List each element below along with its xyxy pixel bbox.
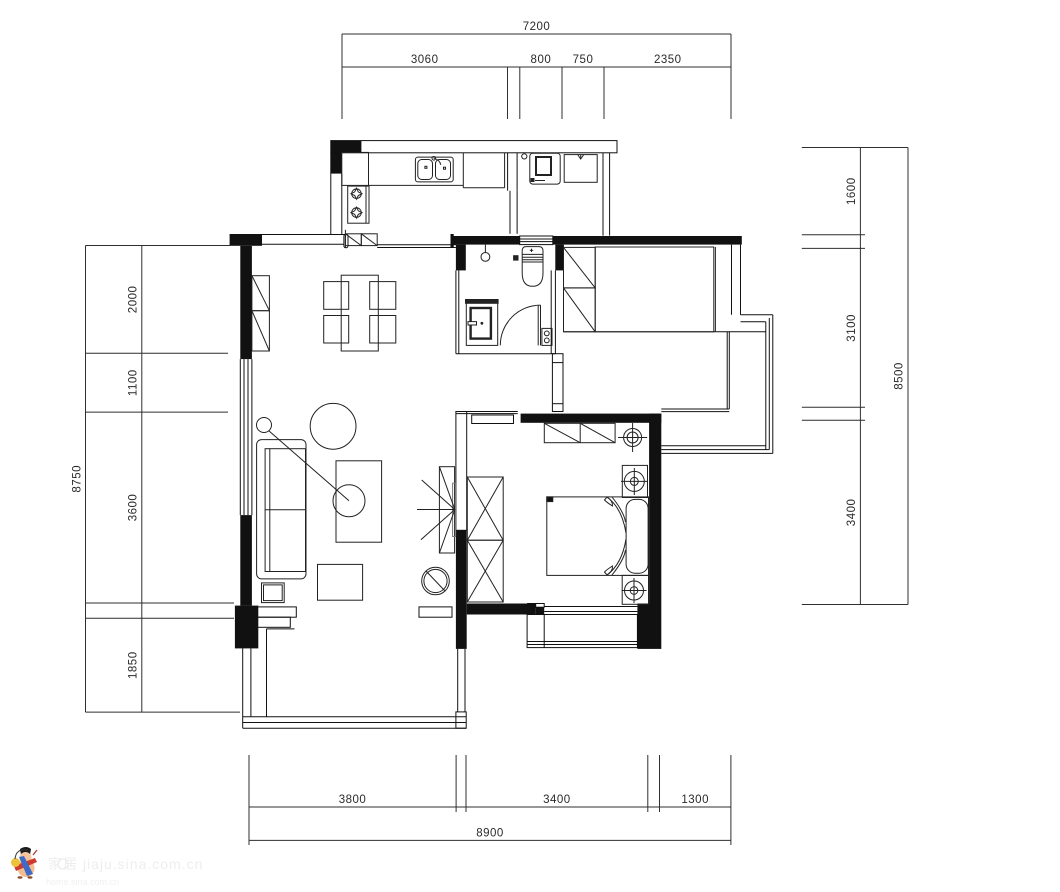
svg-text:3800: 3800: [339, 794, 367, 806]
svg-text:3100: 3100: [846, 314, 858, 342]
svg-text:3060: 3060: [411, 54, 439, 66]
svg-text:8900: 8900: [476, 827, 504, 839]
svg-text:1100: 1100: [128, 369, 140, 396]
svg-text:家居 jiaju.sina.com.cn: 家居 jiaju.sina.com.cn: [48, 856, 203, 872]
svg-text:2000: 2000: [128, 286, 140, 314]
svg-text:3600: 3600: [128, 494, 140, 522]
svg-text:1600: 1600: [846, 177, 858, 205]
svg-text:8500: 8500: [894, 362, 906, 390]
svg-text:3400: 3400: [846, 499, 858, 527]
svg-text:1300: 1300: [681, 794, 709, 806]
svg-text:750: 750: [573, 54, 594, 66]
svg-text:2350: 2350: [654, 54, 682, 66]
svg-text:1850: 1850: [128, 651, 140, 679]
svg-text:3400: 3400: [543, 794, 571, 806]
svg-text:7200: 7200: [523, 21, 551, 33]
svg-text:8750: 8750: [72, 465, 84, 493]
svg-text:home.sina.com.cn: home.sina.com.cn: [46, 877, 119, 887]
svg-text:800: 800: [531, 54, 552, 66]
